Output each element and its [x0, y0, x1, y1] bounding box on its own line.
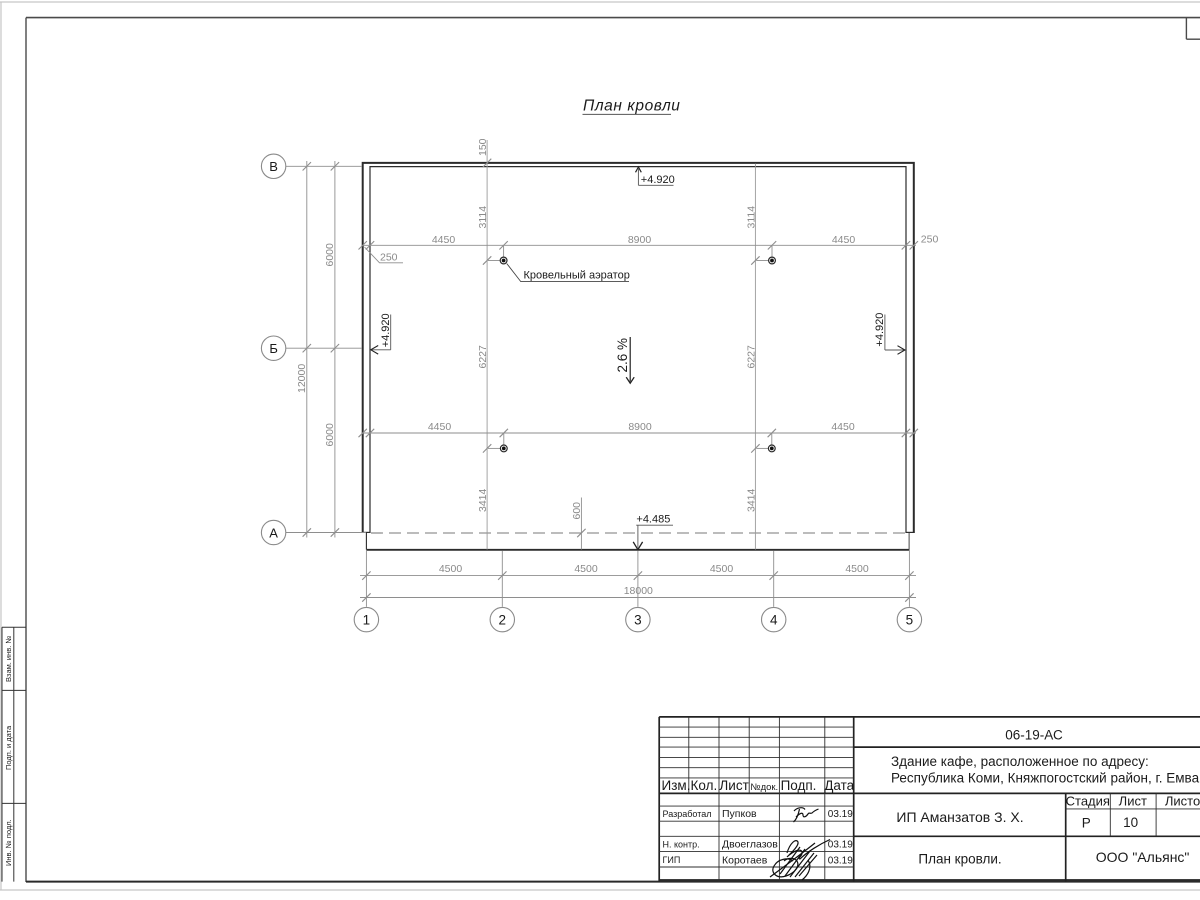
- svg-text:6000: 6000: [324, 243, 336, 267]
- svg-text:Б: Б: [269, 341, 278, 356]
- svg-text:6227: 6227: [477, 345, 489, 369]
- svg-text:Изм.: Изм.: [662, 778, 691, 793]
- svg-text:Подп.: Подп.: [781, 778, 817, 793]
- svg-text:+4.485: +4.485: [636, 514, 670, 526]
- svg-text:Лист: Лист: [1119, 794, 1147, 809]
- svg-text:№док.: №док.: [750, 782, 778, 793]
- svg-text:ИП Аманзатов З. Х.: ИП Аманзатов З. Х.: [896, 809, 1023, 825]
- svg-text:Двоеглазов: Двоеглазов: [722, 839, 778, 851]
- svg-text:Подп. и дата: Подп. и дата: [4, 725, 13, 770]
- svg-text:3414: 3414: [745, 488, 757, 512]
- svg-text:Инв. № подл.: Инв. № подл.: [4, 819, 13, 866]
- svg-text:250: 250: [380, 251, 398, 263]
- svg-text:4500: 4500: [574, 563, 598, 575]
- svg-text:18000: 18000: [624, 585, 653, 597]
- svg-text:5: 5: [906, 612, 914, 627]
- svg-text:А: А: [269, 525, 278, 540]
- svg-text:Пупков: Пупков: [722, 808, 757, 820]
- svg-text:10: 10: [1123, 815, 1138, 830]
- svg-text:Коротаев: Коротаев: [722, 854, 768, 866]
- svg-text:Республика Коми, Княжпогостски: Республика Коми, Княжпогостский район, г…: [891, 771, 1200, 786]
- svg-text:Листов: Листов: [1165, 794, 1200, 809]
- svg-text:Кол.: Кол.: [691, 778, 718, 793]
- svg-text:Кровельный аэратор: Кровельный аэратор: [524, 270, 630, 282]
- svg-text:Взам. инв. №: Взам. инв. №: [4, 636, 13, 682]
- svg-text:+4.920: +4.920: [380, 313, 392, 347]
- svg-text:+4.920: +4.920: [874, 313, 886, 347]
- svg-text:Р: Р: [1082, 816, 1091, 831]
- svg-text:План кровли: План кровли: [583, 98, 681, 115]
- svg-text:6000: 6000: [324, 423, 336, 447]
- svg-text:8900: 8900: [628, 421, 652, 433]
- svg-text:3114: 3114: [477, 206, 489, 229]
- svg-text:Лист: Лист: [719, 778, 748, 793]
- svg-text:Дата: Дата: [824, 778, 854, 793]
- svg-text:В: В: [269, 159, 278, 174]
- svg-text:3: 3: [634, 612, 642, 627]
- svg-text:ООО "Альянс": ООО "Альянс": [1096, 849, 1190, 865]
- svg-text:2: 2: [499, 612, 507, 627]
- svg-text:4500: 4500: [439, 563, 463, 575]
- svg-text:Разработал: Разработал: [663, 809, 712, 819]
- svg-text:+4.920: +4.920: [641, 174, 675, 186]
- svg-text:4: 4: [770, 612, 778, 627]
- svg-text:4450: 4450: [831, 421, 855, 433]
- svg-text:Стадия: Стадия: [1066, 794, 1110, 809]
- svg-text:3114: 3114: [745, 206, 757, 229]
- svg-text:4450: 4450: [428, 421, 452, 433]
- svg-text:4450: 4450: [832, 234, 856, 246]
- svg-text:3414: 3414: [477, 488, 489, 512]
- svg-text:6227: 6227: [745, 345, 757, 369]
- svg-text:06-19-АС: 06-19-АС: [1005, 727, 1063, 742]
- svg-text:8900: 8900: [628, 234, 652, 246]
- svg-text:150: 150: [477, 138, 489, 156]
- svg-text:Н. контр.: Н. контр.: [663, 839, 700, 849]
- svg-text:4450: 4450: [432, 234, 456, 246]
- svg-text:2.6 %: 2.6 %: [615, 338, 630, 373]
- svg-text:250: 250: [921, 234, 939, 246]
- svg-text:4500: 4500: [710, 563, 734, 575]
- svg-text:План кровли.: План кровли.: [918, 851, 1001, 866]
- svg-text:4500: 4500: [845, 563, 869, 575]
- svg-text:1: 1: [363, 612, 371, 627]
- svg-text:ГИП: ГИП: [663, 855, 681, 865]
- svg-text:03.19: 03.19: [828, 809, 853, 820]
- svg-text:Здание кафе, расположенное по: Здание кафе, расположенное по адресу:: [891, 754, 1149, 769]
- svg-text:12000: 12000: [296, 364, 308, 393]
- svg-text:600: 600: [571, 502, 583, 520]
- svg-text:03.19: 03.19: [828, 840, 853, 851]
- svg-text:03.19: 03.19: [828, 855, 853, 866]
